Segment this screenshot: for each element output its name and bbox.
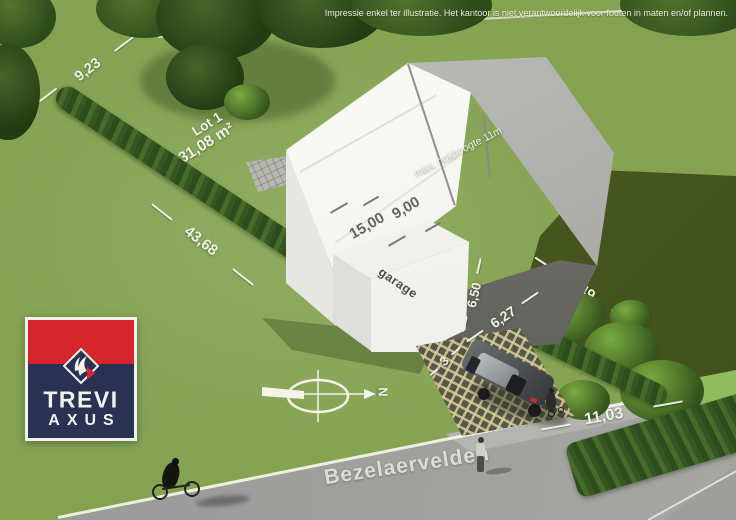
compass-icon [256, 366, 396, 430]
compass-north-label: N [376, 387, 391, 396]
pedestrian-torso [476, 443, 485, 457]
cyclist-head [172, 458, 179, 465]
car-wheel [478, 388, 490, 400]
scooter-rider-head [549, 388, 554, 393]
logo-brand-line1: TREVI [43, 387, 118, 414]
scooter-wheel [548, 410, 555, 417]
logo-brand-line2: AXUS [41, 412, 120, 430]
garden-bush [224, 84, 270, 120]
scooter-wheel [558, 407, 564, 413]
disclaimer-text: Impressie enkel ter illustratie. Het kan… [325, 8, 728, 18]
site-plan-render: 9,23 Lot 1 431,08 m² 43,68 49,49 15,00 9… [0, 0, 736, 520]
pedestrian-legs [477, 456, 484, 472]
agency-logo: TREVI AXUS [25, 317, 137, 441]
logo-bird-icon [59, 344, 103, 388]
car-wheel [528, 404, 541, 417]
scooter-rider [546, 392, 556, 412]
